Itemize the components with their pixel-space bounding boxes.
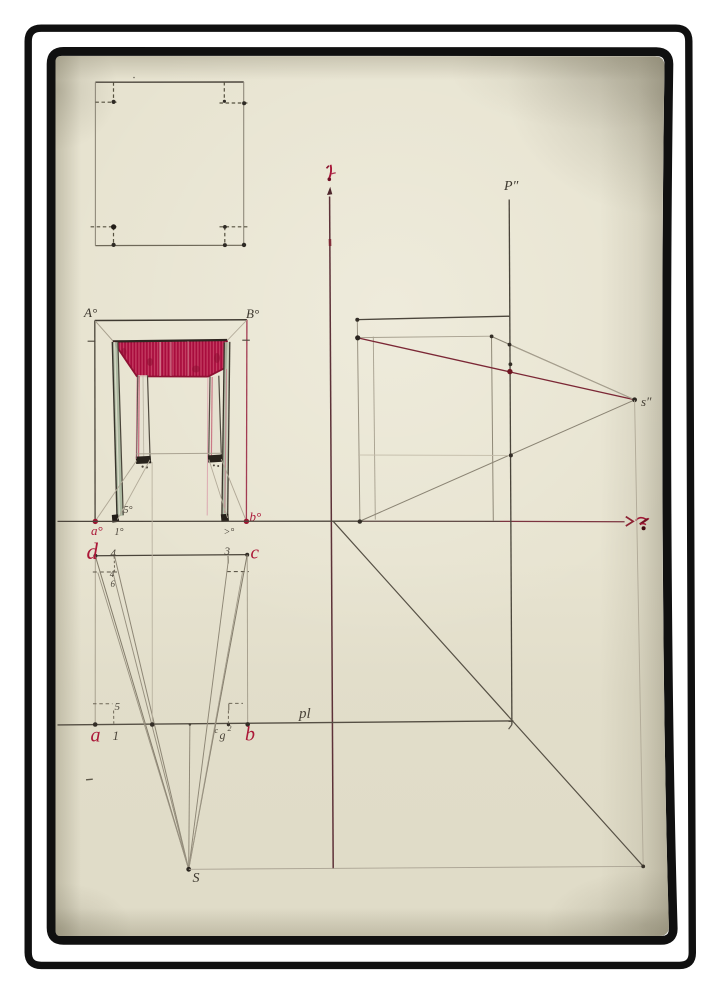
svg-text:A°: A° [83,305,97,320]
svg-text:c: c [215,726,219,735]
svg-text:4: 4 [111,548,117,560]
svg-text:S: S [193,871,200,886]
svg-text:a°: a° [91,523,103,538]
svg-text:2: 2 [228,724,232,733]
svg-text:1°: 1° [115,527,124,538]
svg-text:P″: P″ [503,179,519,194]
svg-text:1: 1 [113,728,120,743]
svg-text:>°: >° [224,527,235,538]
svg-text:b: b [245,724,255,746]
svg-text:d: d [87,539,99,564]
svg-text:3: 3 [224,546,231,558]
svg-text:g: g [220,728,226,742]
svg-text:5°: 5° [124,505,133,516]
svg-text:4: 4 [110,569,115,579]
svg-text:B°: B° [246,306,259,321]
svg-text:a: a [91,725,101,747]
svg-text:c: c [251,543,260,564]
svg-text:5: 5 [115,701,121,713]
svg-text:s″: s″ [641,394,652,409]
svg-text:pl: pl [298,706,311,722]
svg-text:6: 6 [111,579,116,589]
